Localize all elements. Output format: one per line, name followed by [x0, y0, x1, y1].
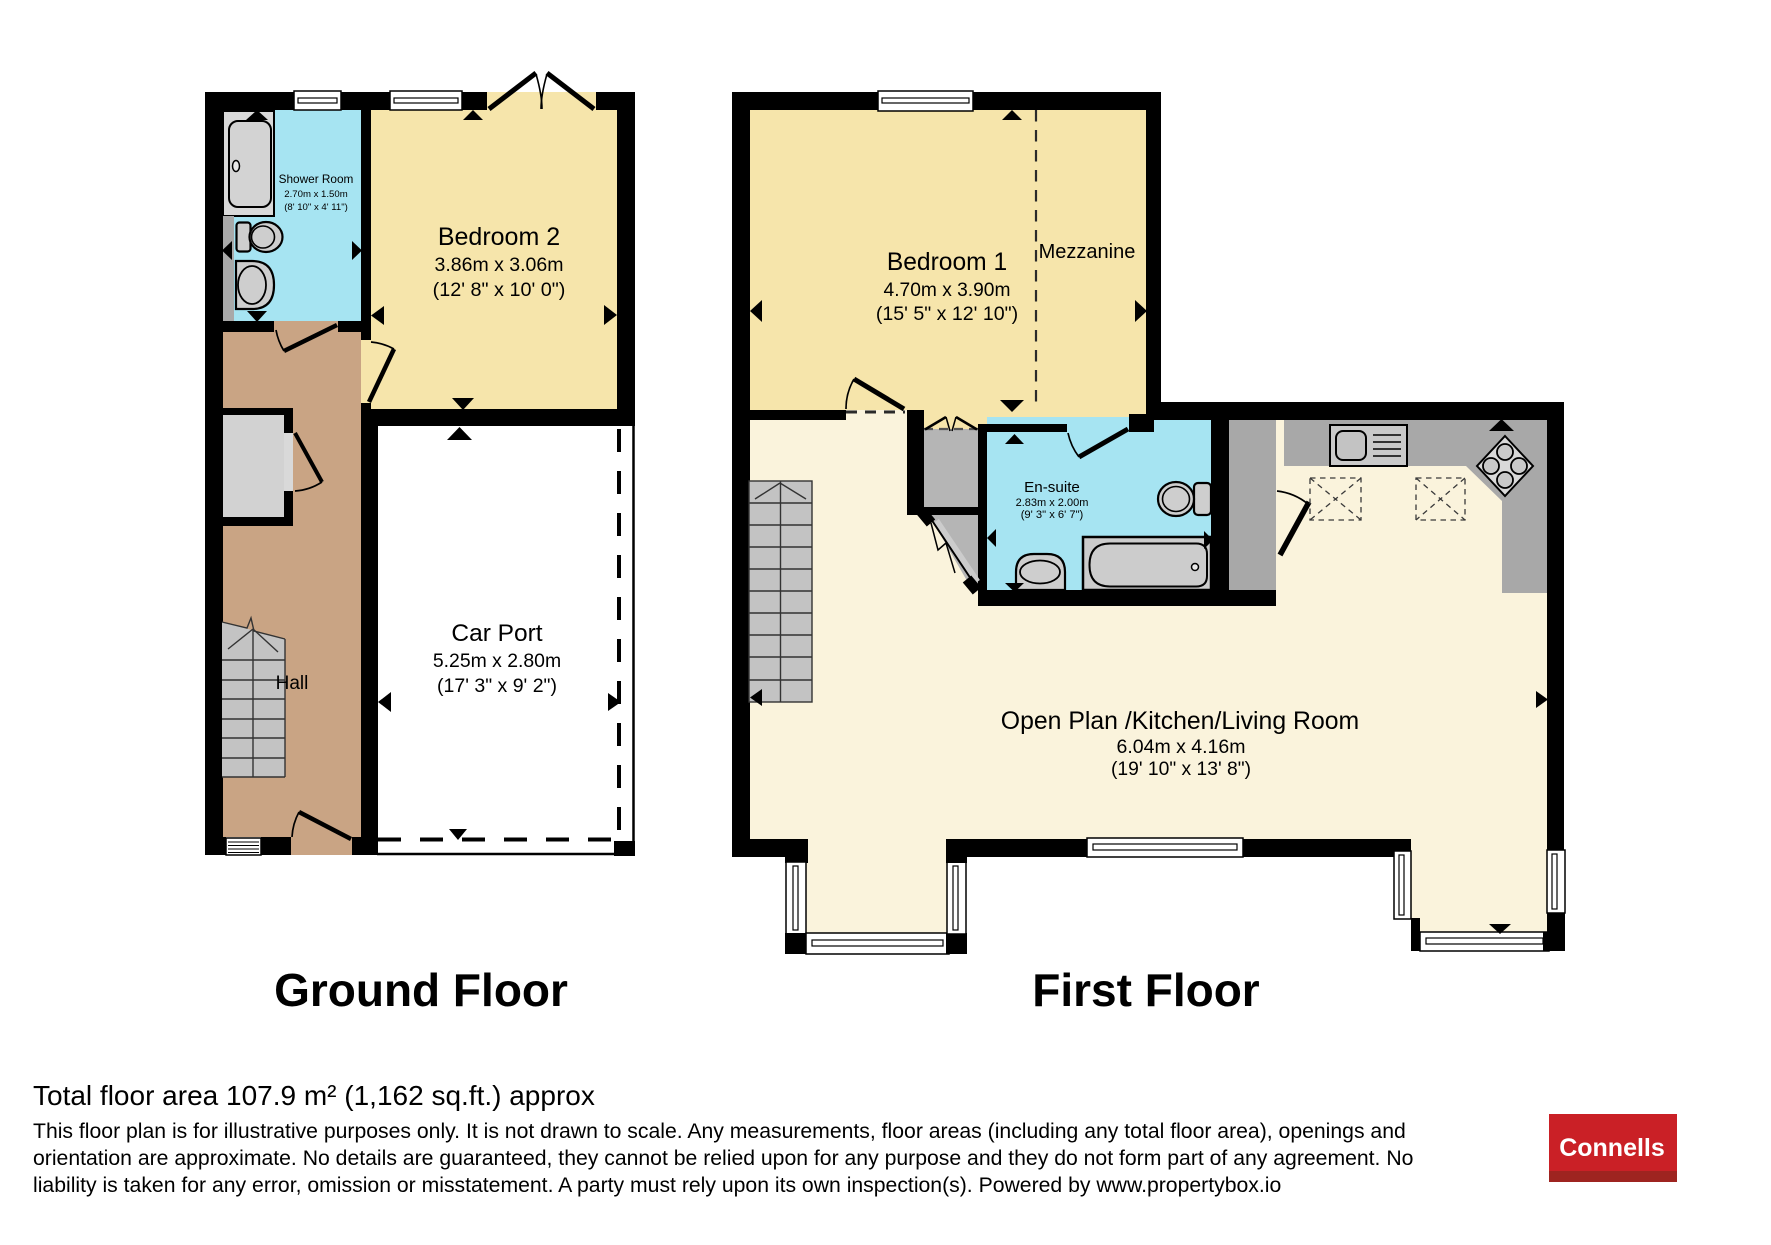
svg-text:Mezzanine: Mezzanine	[1039, 241, 1136, 263]
svg-text:liability is taken for any err: liability is taken for any error, omissi…	[33, 1174, 1281, 1197]
svg-text:(9' 3" x 6' 7"): (9' 3" x 6' 7")	[1021, 509, 1084, 521]
svg-text:(17' 3" x 9' 2"): (17' 3" x 9' 2")	[437, 675, 557, 697]
svg-text:Bedroom 1: Bedroom 1	[887, 249, 1007, 276]
svg-text:First Floor: First Floor	[1032, 964, 1260, 1016]
svg-text:6.04m x 4.16m: 6.04m x 4.16m	[1117, 736, 1246, 758]
svg-text:orientation are approximate. N: orientation are approximate. No details …	[33, 1147, 1413, 1170]
svg-text:Open Plan /Kitchen/Living Room: Open Plan /Kitchen/Living Room	[1001, 708, 1359, 735]
svg-text:2.83m x 2.00m: 2.83m x 2.00m	[1016, 497, 1089, 509]
svg-text:(8' 10" x 4' 11"): (8' 10" x 4' 11")	[284, 202, 348, 213]
svg-text:Car Port: Car Port	[451, 620, 542, 647]
svg-text:Ground Floor: Ground Floor	[274, 964, 568, 1016]
svg-text:Hall: Hall	[276, 673, 309, 694]
svg-text:(12' 8" x 10' 0"): (12' 8" x 10' 0")	[433, 279, 566, 301]
svg-text:3.86m x 3.06m: 3.86m x 3.06m	[435, 254, 564, 276]
svg-text:Shower Room: Shower Room	[279, 172, 354, 186]
svg-text:Bedroom 2: Bedroom 2	[438, 223, 560, 251]
svg-text:En-suite: En-suite	[1024, 479, 1080, 496]
svg-text:Connells: Connells	[1559, 1134, 1665, 1162]
svg-text:5.25m x 2.80m: 5.25m x 2.80m	[433, 650, 561, 672]
svg-text:Total floor area 107.9 m² (1,1: Total floor area 107.9 m² (1,162 sq.ft.)…	[33, 1080, 595, 1111]
svg-text:(15' 5" x 12' 10"): (15' 5" x 12' 10")	[876, 303, 1018, 325]
svg-text:4.70m x 3.90m: 4.70m x 3.90m	[884, 280, 1011, 301]
svg-text:This floor plan is for illustr: This floor plan is for illustrative purp…	[33, 1120, 1406, 1143]
svg-text:(19' 10" x 13' 8"): (19' 10" x 13' 8")	[1111, 759, 1251, 780]
svg-text:2.70m x 1.50m: 2.70m x 1.50m	[284, 189, 347, 200]
